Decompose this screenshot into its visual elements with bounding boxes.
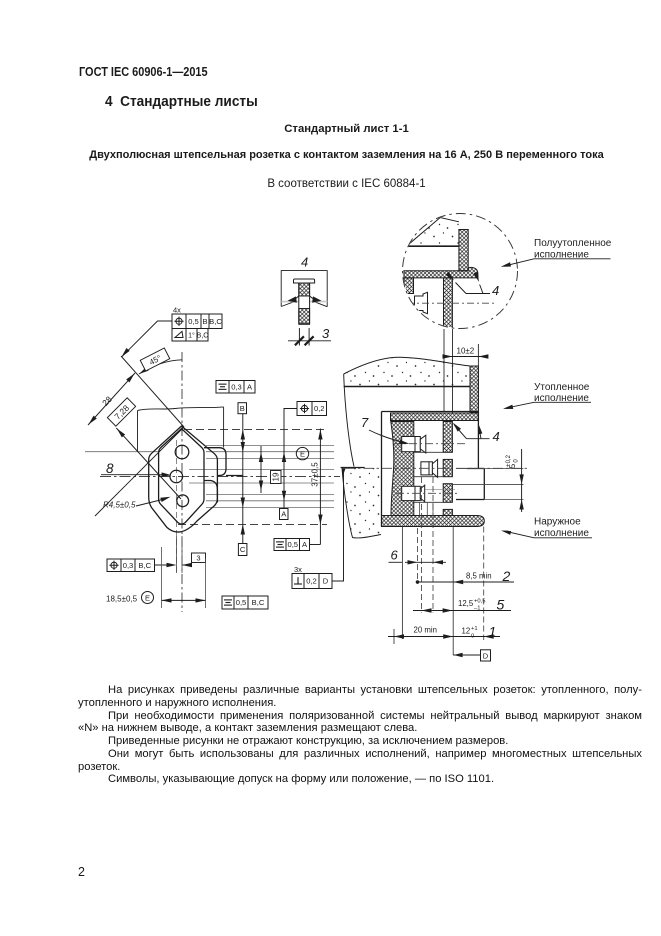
svg-text:4: 4 [492, 283, 499, 298]
svg-text:B,C: B,C [197, 332, 209, 339]
svg-text:D: D [323, 577, 329, 586]
svg-text:3x: 3x [294, 565, 302, 574]
svg-text:8,5 min: 8,5 min [466, 572, 492, 581]
svg-text:+0,2: +0,2 [506, 454, 512, 467]
svg-text:1°: 1° [188, 331, 195, 339]
svg-text:3: 3 [322, 326, 330, 341]
svg-text:B: B [240, 404, 245, 413]
svg-text:4: 4 [493, 429, 500, 444]
svg-text:0,2: 0,2 [306, 577, 317, 586]
svg-text:C: C [240, 545, 246, 554]
svg-text:E: E [145, 594, 150, 603]
svg-text:B,C: B,C [138, 561, 151, 570]
svg-text:4: 4 [301, 255, 308, 270]
svg-text:37±0,5: 37±0,5 [311, 462, 320, 487]
svg-text:Наружное: Наружное [534, 517, 581, 528]
svg-text:0,3: 0,3 [123, 561, 134, 570]
svg-text:Полуутопленное: Полуутопленное [534, 238, 612, 249]
svg-text:B,C: B,C [209, 317, 222, 326]
svg-text:0,5: 0,5 [188, 317, 199, 326]
svg-text:+0,5: +0,5 [474, 599, 485, 605]
svg-text:0,3: 0,3 [231, 382, 242, 391]
svg-text:6: 6 [391, 548, 399, 563]
svg-text:7: 7 [361, 415, 369, 430]
svg-text:20 min: 20 min [414, 626, 437, 635]
svg-text:10±2: 10±2 [457, 347, 475, 356]
svg-text:0,5: 0,5 [236, 598, 247, 607]
svg-text:12,5: 12,5 [458, 599, 474, 608]
svg-text:+1: +1 [471, 626, 478, 632]
svg-text:B: B [202, 317, 207, 326]
svg-text:3: 3 [196, 554, 200, 563]
svg-text:0,5: 0,5 [287, 540, 298, 549]
svg-text:R4,5±0,5: R4,5±0,5 [103, 501, 136, 510]
svg-text:B,C: B,C [252, 598, 265, 607]
svg-text:E: E [300, 450, 305, 459]
svg-text:19: 19 [272, 472, 281, 481]
svg-text:4x: 4x [173, 306, 181, 315]
svg-text:0,2: 0,2 [314, 404, 325, 413]
svg-text:12: 12 [462, 627, 471, 636]
svg-text:18,5±0,5: 18,5±0,5 [106, 595, 138, 604]
svg-text:D: D [483, 651, 489, 660]
svg-text:Утопленное: Утопленное [534, 382, 590, 393]
svg-text:28: 28 [100, 394, 114, 408]
svg-text:8: 8 [106, 461, 114, 476]
svg-text:0: 0 [514, 459, 520, 463]
